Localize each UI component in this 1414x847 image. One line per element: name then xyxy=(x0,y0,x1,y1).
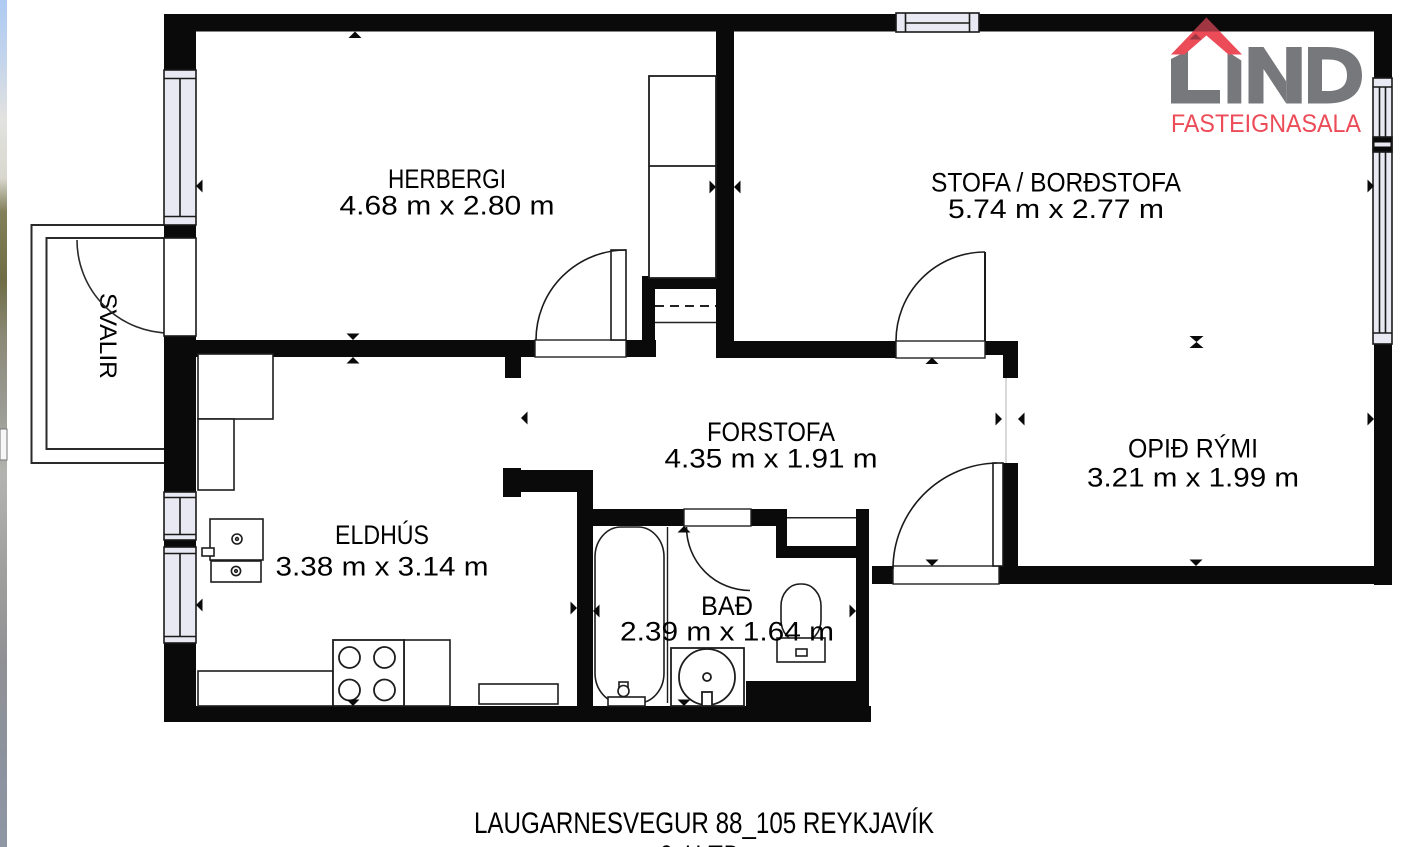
svg-text:FORSTOFA: FORSTOFA xyxy=(707,417,835,447)
svg-text:SVALIR: SVALIR xyxy=(94,293,121,379)
svg-text:FASTEIGNASALA: FASTEIGNASALA xyxy=(1171,110,1361,138)
svg-text:3.21 m x 1.99 m: 3.21 m x 1.99 m xyxy=(1087,463,1299,493)
svg-text:STOFA / BORÐSTOFA: STOFA / BORÐSTOFA xyxy=(931,168,1181,198)
svg-text:4.35 m x 1.91 m: 4.35 m x 1.91 m xyxy=(665,444,878,474)
svg-text:2.39 m x 1.64 m: 2.39 m x 1.64 m xyxy=(620,617,834,647)
svg-text:5.74 m x 2.77 m: 5.74 m x 2.77 m xyxy=(948,194,1164,224)
svg-text:HERBERGI: HERBERGI xyxy=(388,164,506,194)
svg-text:LAUGARNESVEGUR 88_105 REYKJAVÍ: LAUGARNESVEGUR 88_105 REYKJAVÍK xyxy=(474,807,934,840)
svg-text:3.38 m x 3.14 m: 3.38 m x 3.14 m xyxy=(276,552,489,582)
svg-text:4.68 m x 2.80 m: 4.68 m x 2.80 m xyxy=(340,191,555,221)
svg-text:ELDHÚS: ELDHÚS xyxy=(335,519,429,550)
svg-text:OPIÐ RÝMI: OPIÐ RÝMI xyxy=(1128,434,1258,464)
svg-text:2. HÆÐ: 2. HÆÐ xyxy=(660,840,740,847)
